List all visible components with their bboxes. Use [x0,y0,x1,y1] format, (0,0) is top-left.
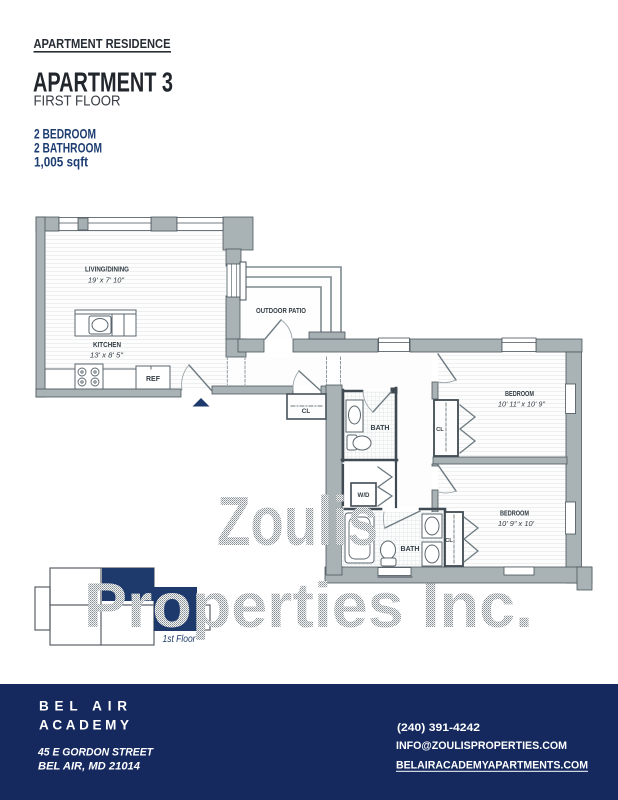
svg-text:APARTMENT RESIDENCE: APARTMENT RESIDENCE [34,36,171,51]
svg-text:Zoulis: Zoulis [217,482,378,560]
svg-text:19' x 7' 10": 19' x 7' 10" [88,276,124,285]
svg-text:CL: CL [436,427,444,433]
svg-text:FIRST FLOOR: FIRST FLOOR [34,93,121,110]
svg-text:(240) 391-4242: (240) 391-4242 [397,722,480,734]
svg-text:KITCHEN: KITCHEN [93,342,121,349]
svg-text:OUTDOOR PATIO: OUTDOOR PATIO [256,308,306,315]
svg-text:BATH: BATH [401,546,420,553]
svg-text:10' 9" x 10': 10' 9" x 10' [498,519,535,528]
svg-text:13' x 8' 5": 13' x 8' 5" [90,351,123,360]
svg-text:BELAIRACADEMYAPARTMENTS.COM: BELAIRACADEMYAPARTMENTS.COM [396,760,588,772]
svg-text:BEDROOM: BEDROOM [505,391,534,398]
svg-text:Properties Inc.: Properties Inc. [84,571,533,641]
svg-text:CL: CL [302,408,311,415]
svg-text:ACADEMY: ACADEMY [39,718,129,733]
svg-text:INFO@ZOULISPROPERTIES.COM: INFO@ZOULISPROPERTIES.COM [396,740,567,752]
svg-text:LIVING/DINING: LIVING/DINING [85,267,129,274]
svg-text:1,005 sqft: 1,005 sqft [34,154,88,170]
svg-text:45 E GORDON STREET: 45 E GORDON STREET [37,747,154,759]
svg-text:CL: CL [445,538,453,544]
svg-text:BEL AIR, MD 21014: BEL AIR, MD 21014 [38,761,140,773]
svg-text:BEDROOM: BEDROOM [500,511,529,518]
svg-text:BATH: BATH [371,425,390,432]
svg-text:10' 11" x 10' 9": 10' 11" x 10' 9" [498,400,545,409]
svg-text:REF: REF [146,376,161,383]
